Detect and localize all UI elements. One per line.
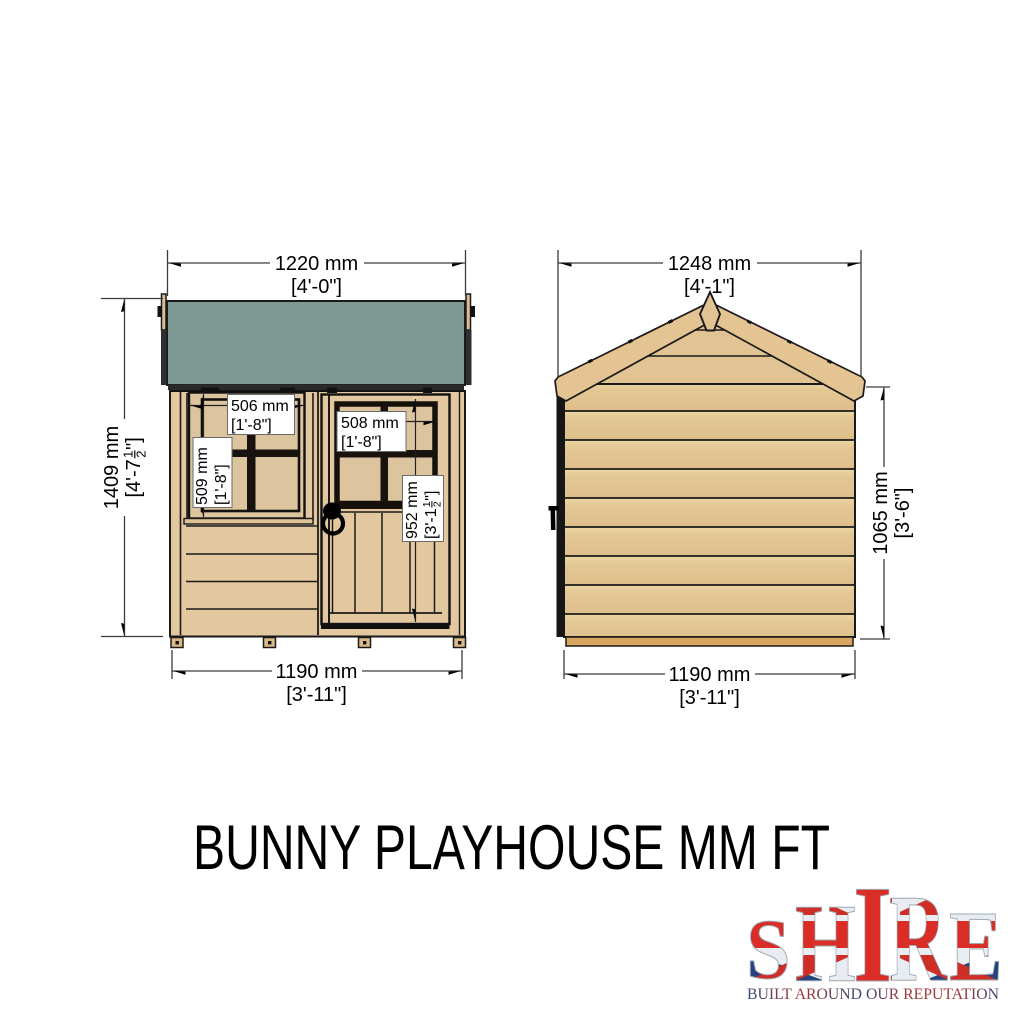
svg-text:1248 mm: 1248 mm	[668, 253, 751, 275]
svg-text:[3'-11"]: [3'-11"]	[286, 684, 347, 706]
svg-text:2: 2	[432, 501, 444, 507]
svg-text:952 mm: 952 mm	[404, 481, 421, 539]
svg-text:509 mm: 509 mm	[194, 447, 211, 505]
svg-text:[4'-1"]: [4'-1"]	[684, 276, 735, 298]
svg-text:506 mm: 506 mm	[231, 398, 289, 415]
svg-text:"]: "]	[423, 491, 440, 501]
svg-text:508 mm: 508 mm	[341, 415, 399, 432]
svg-text:"]: "]	[123, 437, 145, 450]
svg-text:1065 mm: 1065 mm	[870, 471, 892, 554]
svg-text:[3'-6"]: [3'-6"]	[892, 488, 914, 539]
svg-text:1190 mm: 1190 mm	[669, 664, 751, 686]
svg-text:1220 mm: 1220 mm	[275, 253, 358, 275]
svg-text:1409 mm: 1409 mm	[101, 426, 123, 509]
svg-text:S: S	[746, 901, 790, 996]
svg-text:[3'-11"]: [3'-11"]	[679, 687, 740, 709]
svg-text:[4'-7: [4'-7	[123, 459, 145, 497]
svg-text:2: 2	[134, 450, 149, 457]
svg-text:BUILT AROUND OUR REPUTATION: BUILT AROUND OUR REPUTATION	[747, 986, 999, 1003]
svg-text:1190 mm: 1190 mm	[276, 661, 358, 683]
svg-text:[1'-8"]: [1'-8"]	[231, 417, 272, 434]
svg-text:[1'-8"]: [1'-8"]	[341, 434, 382, 451]
svg-text:[4'-0"]: [4'-0"]	[291, 276, 342, 298]
svg-text:BUNNY PLAYHOUSE MM FT: BUNNY PLAYHOUSE MM FT	[193, 813, 830, 883]
svg-text:[3'-1: [3'-1	[423, 508, 440, 539]
svg-text:[1'-8"]: [1'-8"]	[213, 464, 230, 505]
